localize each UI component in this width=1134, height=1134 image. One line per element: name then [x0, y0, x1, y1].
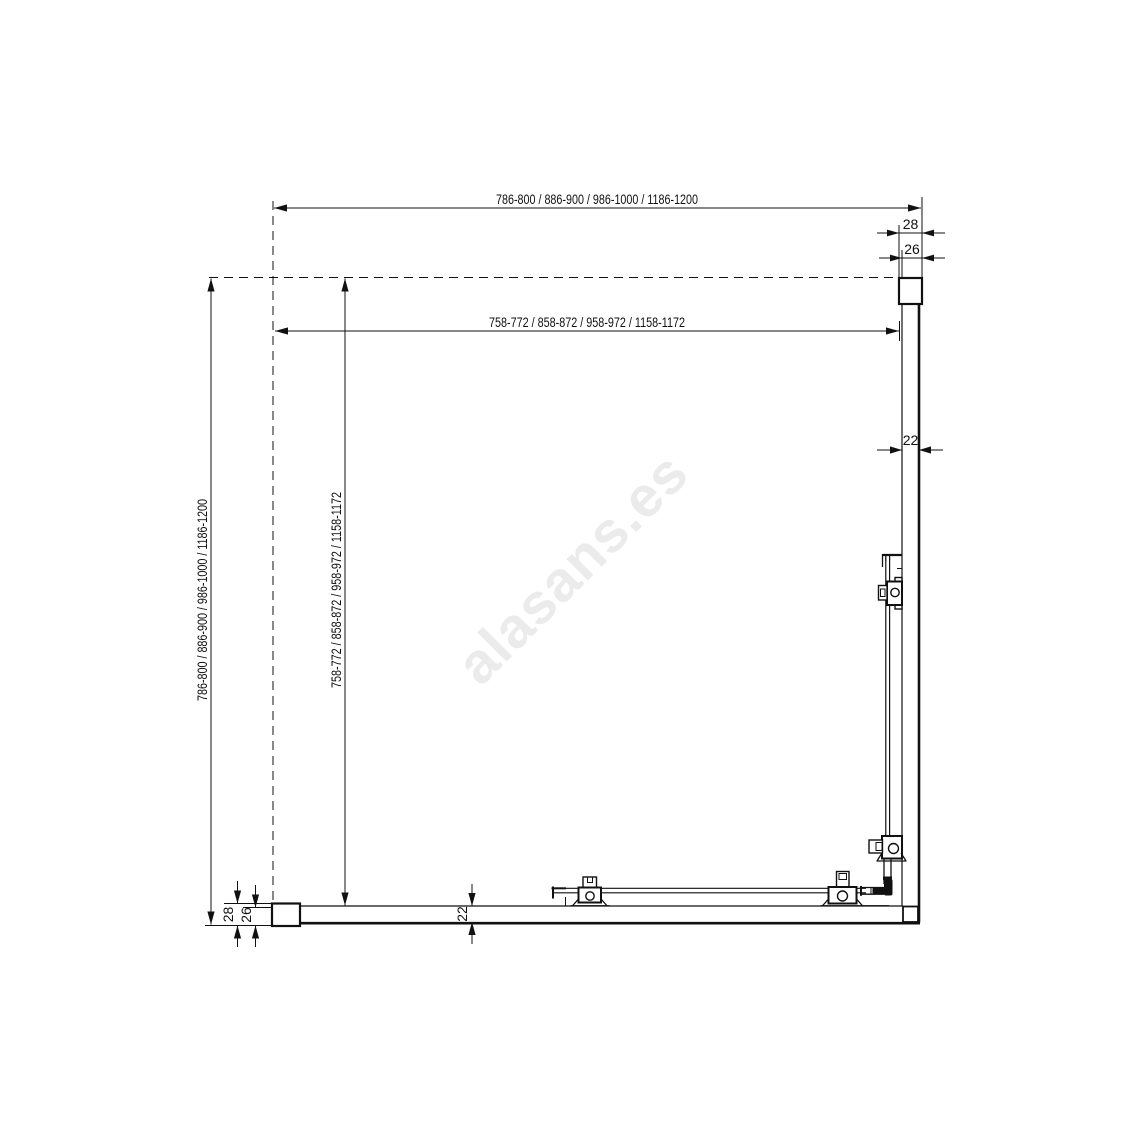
corner-connector-elbow: [861, 859, 893, 896]
roller-right-upper: [879, 578, 903, 610]
roller-bottom-left: [571, 877, 610, 906]
dim-left-outer-height: 786-800 / 886-900 / 986-1000 / 1186-1200: [194, 279, 215, 925]
dim-label-top-outer: 786-800 / 886-900 / 986-1000 / 1186-1200: [496, 191, 698, 207]
fixed-glass-panels: [300, 304, 920, 923]
wall-profile-top-right: [899, 278, 922, 304]
dim-top-profile-26: 26: [879, 241, 945, 277]
dim-right-glass-22: 22: [877, 432, 943, 454]
roller-right-lower: [869, 836, 907, 861]
shower-enclosure-plan-drawing: alasans.es 786-800 / 886-900 / 986-1000 …: [0, 0, 1134, 1134]
dim-label-28-top: 28: [903, 216, 919, 232]
dim-bottom-profile-26: 26: [238, 885, 259, 947]
dim-label-22-bottom: 22: [454, 906, 470, 922]
dim-label-26-bottom: 26: [238, 907, 254, 923]
dim-label-26-top: 26: [904, 241, 920, 257]
dim-label-left-inner: 758-772 / 858-872 / 958-972 / 1158-1172: [328, 492, 344, 688]
watermark-text: alasans.es: [445, 441, 701, 697]
dim-top-outer-width: 786-800 / 886-900 / 986-1000 / 1186-1200: [274, 191, 922, 277]
shower-enclosure-structure: [272, 278, 922, 926]
dim-left-inner-height: 758-772 / 858-872 / 958-972 / 1158-1172: [328, 279, 349, 906]
technical-drawing-canvas: alasans.es 786-800 / 886-900 / 986-1000 …: [0, 0, 1134, 1134]
dim-label-22-right: 22: [903, 432, 919, 448]
dim-top-inner-width: 758-772 / 858-872 / 958-972 / 1158-1172: [275, 314, 900, 341]
dim-label-top-inner: 758-772 / 858-872 / 958-972 / 1158-1172: [489, 314, 685, 330]
dim-label-left-outer: 786-800 / 886-900 / 986-1000 / 1186-1200: [194, 499, 210, 701]
dim-label-28-bottom: 28: [220, 907, 236, 923]
dim-bottom-glass-22: 22: [454, 884, 476, 944]
corner-profile-bottom-right: [903, 907, 918, 923]
wall-profile-bottom-left: [272, 904, 300, 927]
wall-profiles: [272, 278, 922, 926]
